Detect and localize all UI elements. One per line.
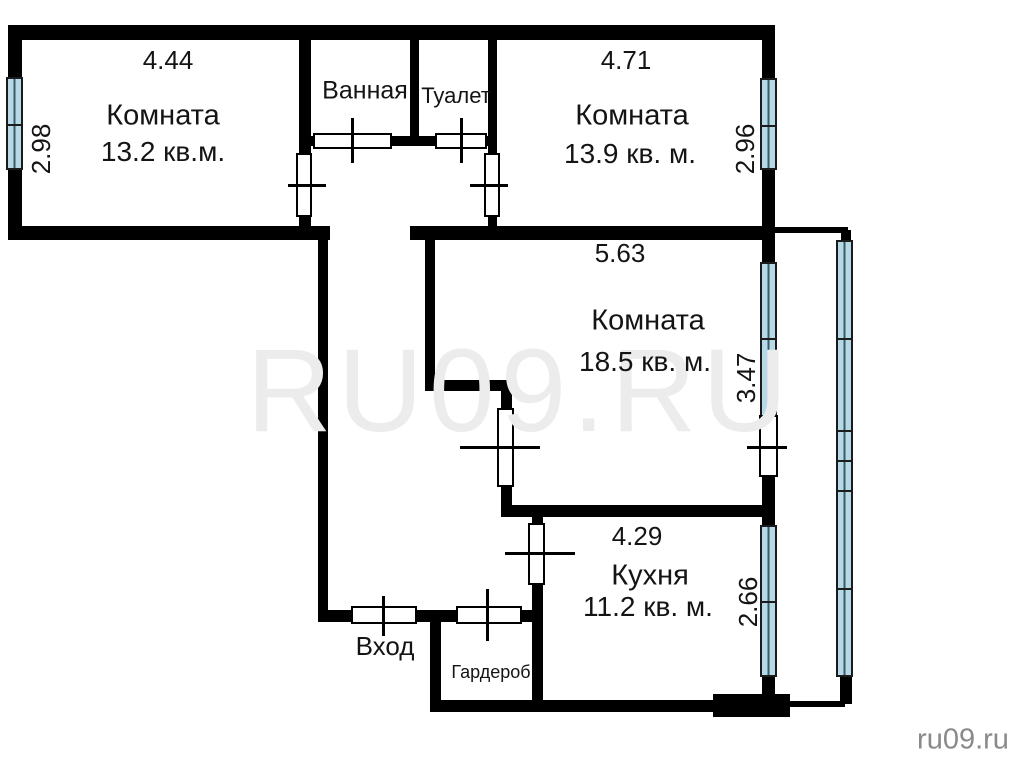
door-tick-toilet [460,118,463,163]
door-wardrobe [456,606,522,624]
room1-name-label: Комната [106,102,220,131]
wall-balcony-strip-bottom-stub [840,676,852,704]
watermark: RU09.RU [247,323,794,459]
door-tick-balcony [747,446,787,449]
door-tick-room3 [460,446,540,449]
room2-depth-label: 2.96 [732,124,758,175]
kitchen-width-label: 4.29 [612,523,663,549]
wall-balcony-top-line [775,227,848,233]
room3-depth-label: 3.47 [733,353,759,404]
window-divider [838,430,851,432]
kitchen-depth-label: 2.66 [735,577,761,628]
wall-corridor-bottom-a [318,610,353,622]
wall-right-lower [762,170,775,262]
room1-depth-label: 2.98 [28,124,54,175]
toilet-label: Туалет [421,85,491,107]
wall-mid-horizontal [410,226,775,240]
wall-bath-toilet-divider [410,40,419,136]
wall-top [8,25,775,40]
window-divider [8,124,21,126]
wall-inner-balcony-low [762,677,775,705]
door-tick-room2 [470,184,508,187]
wardrobe-label: Гардероб [451,663,530,681]
door-tick-kitchen [505,552,575,555]
bathroom-label: Ванная [322,79,408,104]
wall-kitchen-bottom [532,700,713,712]
wall-room3-left [425,233,435,388]
kitchen-name-label: Кухня [611,562,689,591]
room2-area-label: 13.9 кв. м. [564,140,696,168]
wall-balcony-bottom-line [790,701,845,707]
room3-area-label: 18.5 кв. м. [579,348,711,376]
wall-room3-left-lower-a [501,380,512,410]
wall-room1-right-upper [299,40,311,155]
wall-kitchen-left-upper [532,505,543,525]
window-room2-right [760,78,777,170]
kitchen-area-label: 11.2 кв. м. [583,593,713,621]
site-credit: ru09.ru [917,724,1009,757]
entrance-label: Вход [356,633,415,659]
wall-wardrobe-bottom [430,700,543,712]
window-divider [838,490,851,492]
wall-room1-right-lower [299,217,311,226]
door-tick-entrance [382,596,385,636]
window-room3-balcony [760,262,777,417]
window-balcony-glazing [836,240,853,677]
floor-plan: RU09.RU 4.44 Комната 13.2 кв.м. 2.98 Ван… [0,0,1024,768]
room1-width-label: 4.44 [143,47,194,73]
window-divider [762,125,775,127]
wall-left-upper [8,25,22,77]
window-divider [838,338,851,340]
room3-width-label: 5.63 [595,240,646,266]
window-room1-left [6,77,23,170]
wall-right-upper [762,25,775,78]
window-divider [838,460,851,462]
room2-name-label: Комната [575,102,689,131]
door-tick-room1 [288,184,326,187]
wall-wardrobe-top-a [430,610,458,622]
window-divider [762,601,775,603]
room1-area-label: 13.2 кв.м. [101,138,225,166]
door-tick-bathroom [351,118,354,163]
wall-room3-step [425,380,512,391]
wall-inner-balcony-mid [762,475,775,525]
wall-bottom-block [713,694,790,717]
door-tick-wardrobe [486,589,489,641]
wall-corridor-left [318,233,328,622]
room2-width-label: 4.71 [601,47,652,73]
room3-name-label: Комната [591,307,705,336]
wall-wardrobe-right [532,610,543,712]
window-divider [762,338,775,340]
window-divider [838,588,851,590]
wall-room2-left-lower [488,217,497,226]
wall-wardrobe-left [430,610,441,712]
wall-room1-bottom [8,226,330,240]
